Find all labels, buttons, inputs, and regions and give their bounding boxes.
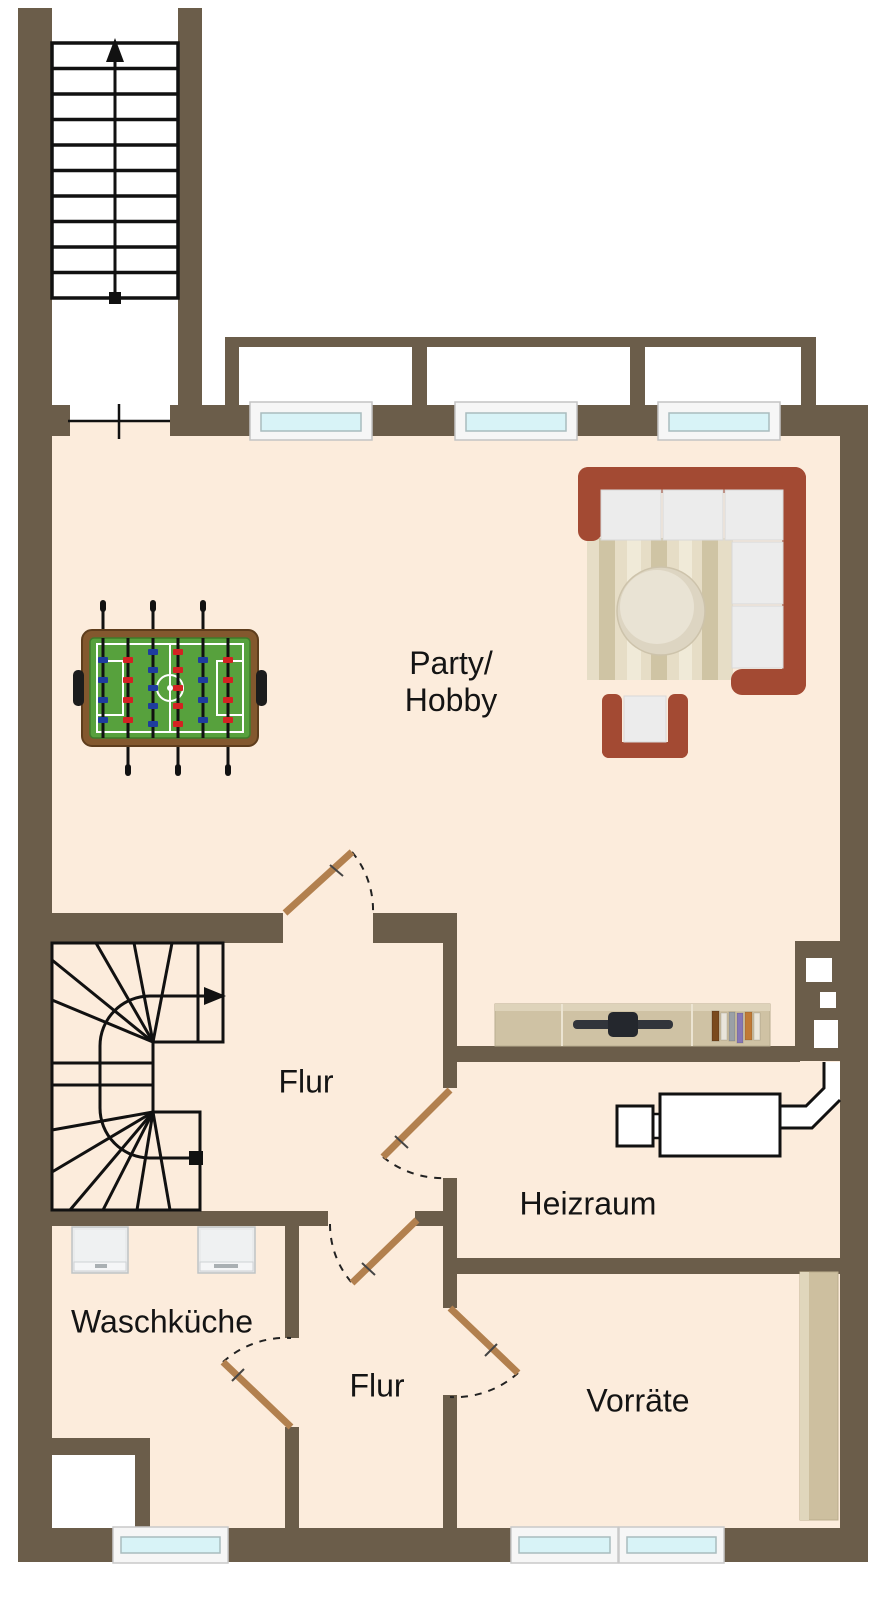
room-label-heizraum: Heizraum	[520, 1186, 657, 1223]
light-well-divider	[630, 337, 645, 408]
flur-door-stub	[415, 1211, 443, 1226]
room-label-flur-upper: Flur	[278, 1064, 333, 1101]
room-label-flur-lower: Flur	[349, 1368, 404, 1405]
sideboard	[495, 1004, 770, 1046]
window	[250, 402, 372, 440]
window	[619, 1527, 724, 1563]
window	[511, 1527, 618, 1563]
chimney	[795, 941, 840, 1061]
stairwell-right-wall	[178, 8, 202, 408]
window	[113, 1527, 228, 1563]
handle	[73, 670, 84, 706]
heizraum-vorraete-wall	[457, 1258, 840, 1274]
left-outer-wall	[18, 8, 52, 1562]
waschkueche-wall-upper	[285, 1226, 299, 1338]
handle	[256, 670, 267, 706]
washing-machine	[198, 1227, 255, 1273]
light-well-divider	[801, 337, 816, 408]
window	[455, 402, 577, 440]
armchair	[602, 694, 688, 758]
flur-heizraum-wall-upper	[443, 943, 457, 1088]
boiler-tank	[617, 1106, 653, 1146]
party-flur-wall-left	[52, 913, 283, 943]
flur-heizraum-wall-lower	[443, 1178, 457, 1308]
flur-waschkueche-wall	[52, 1211, 328, 1226]
waschkueche-wall-lower	[285, 1427, 299, 1528]
storage-shelf	[800, 1272, 838, 1520]
light-well-rail	[225, 337, 816, 347]
stair-start-marker	[189, 1151, 203, 1165]
light-well-divider	[412, 337, 427, 408]
floor-plan: Party/ Hobby Flur Heizraum Waschküche Fl…	[0, 0, 887, 1597]
straight-staircase	[52, 38, 178, 304]
floor-plan-drawing	[0, 0, 887, 1597]
entry-wall-stub	[18, 405, 70, 436]
light-well-divider	[225, 337, 239, 408]
window	[658, 402, 780, 440]
boiler	[660, 1094, 780, 1156]
heizraum-top-wall	[457, 1046, 800, 1062]
washing-machine	[72, 1227, 128, 1273]
niche-right-wall	[135, 1455, 150, 1528]
party-flur-wall-right	[373, 913, 457, 943]
room-label-vorraete: Vorräte	[586, 1383, 689, 1420]
stair-start-marker	[109, 292, 121, 304]
niche-top-wall	[50, 1438, 150, 1455]
right-outer-wall	[840, 405, 868, 1562]
room-label-waschkueche: Waschküche	[71, 1304, 253, 1341]
top-windows	[250, 402, 780, 440]
room-label-party-hobby: Party/ Hobby	[405, 645, 498, 719]
round-coffee-table	[617, 567, 705, 655]
vorraete-left-wall	[443, 1395, 457, 1528]
utility-niche	[52, 1455, 135, 1528]
